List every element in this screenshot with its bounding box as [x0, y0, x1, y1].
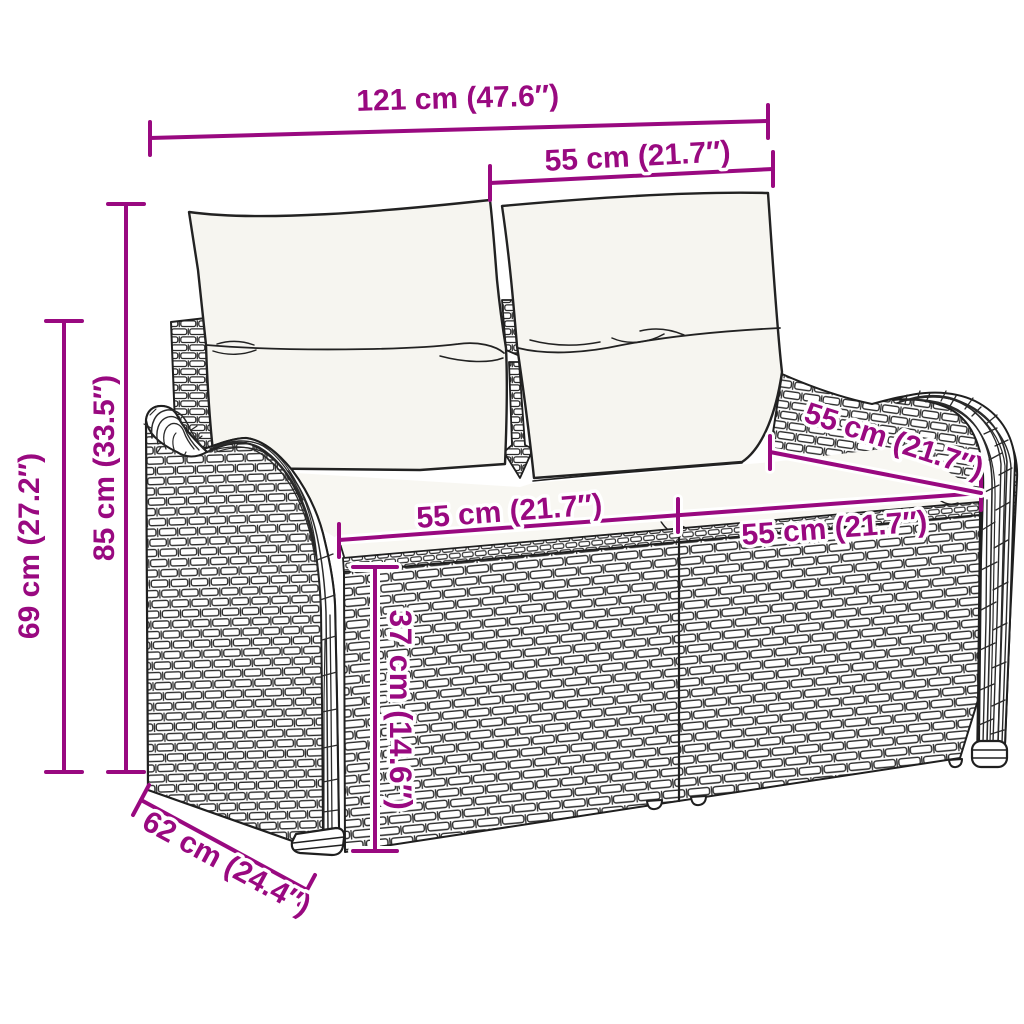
- svg-text:121 cm (47.6″): 121 cm (47.6″): [356, 79, 560, 118]
- svg-text:37 cm (14.6″): 37 cm (14.6″): [383, 610, 419, 811]
- svg-text:85 cm (33.5″): 85 cm (33.5″): [88, 375, 121, 561]
- svg-text:69 cm (27.2″): 69 cm (27.2″): [13, 453, 46, 639]
